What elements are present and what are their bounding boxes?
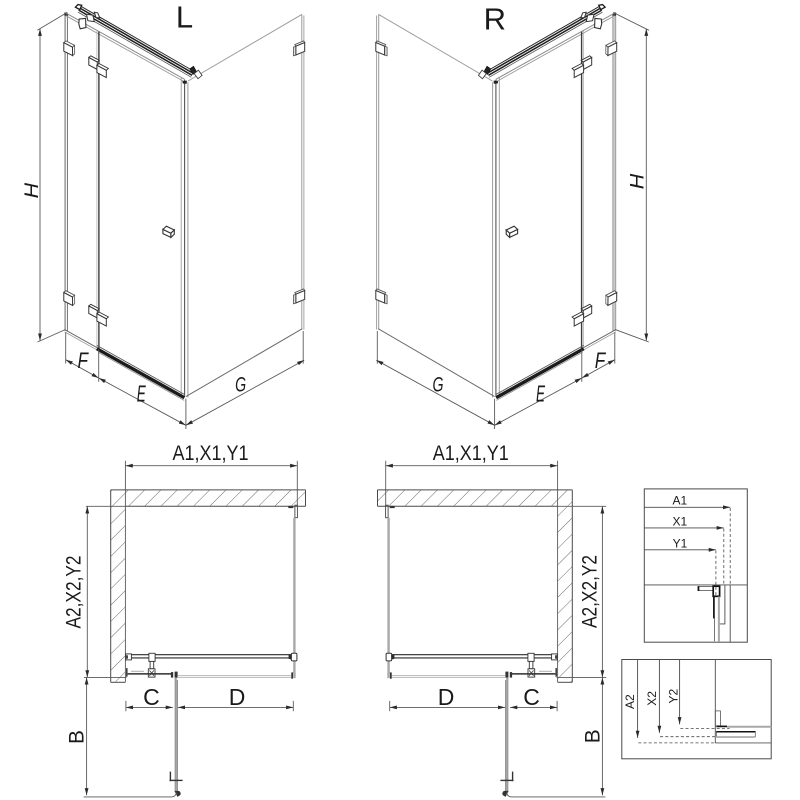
svg-text:Y2: Y2	[666, 688, 680, 703]
svg-text:R: R	[484, 2, 506, 37]
svg-text:X1: X1	[672, 515, 687, 529]
svg-text:A1,X1,Y1: A1,X1,Y1	[173, 442, 249, 465]
svg-text:F: F	[595, 348, 607, 373]
svg-text:X2: X2	[645, 691, 659, 706]
svg-text:Y1: Y1	[673, 537, 688, 551]
svg-text:A1,X1,Y1: A1,X1,Y1	[433, 442, 509, 465]
svg-text:G: G	[433, 374, 444, 397]
svg-text:C: C	[523, 684, 540, 710]
svg-text:D: D	[229, 684, 246, 710]
svg-text:F: F	[78, 348, 90, 373]
svg-text:A1: A1	[672, 493, 687, 507]
svg-text:A2: A2	[623, 694, 637, 709]
svg-text:H: H	[627, 173, 649, 189]
svg-text:D: D	[438, 684, 455, 710]
svg-text:E: E	[536, 381, 545, 407]
svg-text:L: L	[176, 0, 193, 35]
svg-text:A2,X2,Y2: A2,X2,Y2	[579, 555, 602, 628]
svg-text:G: G	[235, 374, 246, 397]
svg-text:B: B	[582, 729, 605, 743]
svg-text:H: H	[21, 182, 43, 198]
svg-text:C: C	[143, 684, 160, 710]
svg-text:A2,X2,Y2: A2,X2,Y2	[62, 556, 85, 629]
svg-text:E: E	[137, 381, 146, 407]
svg-text:B: B	[66, 730, 89, 744]
